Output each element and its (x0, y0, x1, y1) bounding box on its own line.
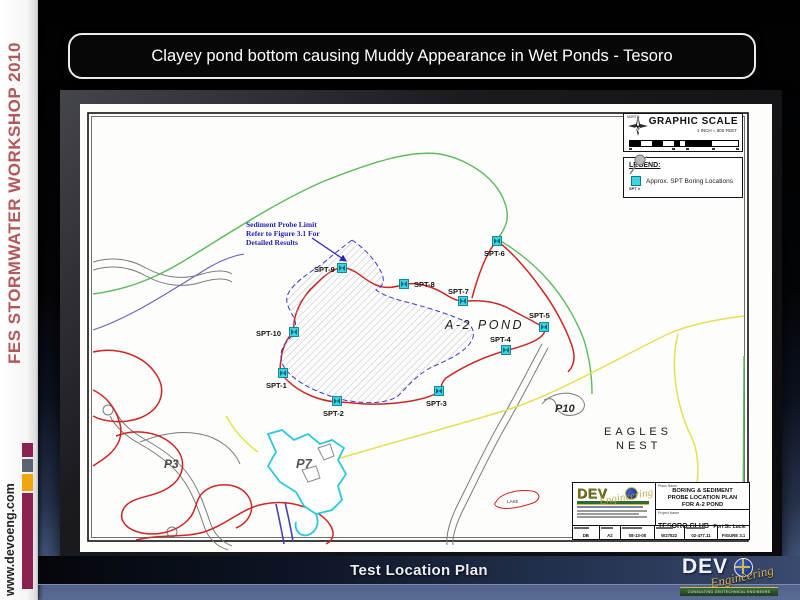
boring-label: SPT-8 (414, 280, 435, 289)
boring-label: SPT-10 (256, 329, 281, 338)
boring-label: SPT-1 (266, 381, 287, 390)
north-arrow: NORTH N (627, 115, 639, 119)
tb-cell-drawn: DB (583, 533, 589, 540)
eagles-nest-line1: EAGLES (604, 426, 672, 438)
tb-cell-date: 08-13-08 (629, 533, 646, 540)
tb-cell-figure: FIGURE 3.1 (722, 533, 745, 540)
legend-entry: Approx. SPT Boring Locations (646, 178, 733, 185)
website-url: www.devoeng.com (3, 440, 20, 596)
slide-title: Clayey pond bottom causing Muddy Appeara… (151, 47, 672, 66)
footer-logo-tagline-bar: CONSULTING GEOTECHNICAL ENGINEERS (680, 587, 778, 596)
graphic-scale-box: NORTH N GRAPHIC SCALE 1 INCH = 800 FEET (623, 113, 743, 152)
p10-label: P10 (555, 403, 575, 415)
boring-label: SPT-5 (529, 311, 550, 320)
boring-label: SPT-4 (490, 335, 512, 344)
blue-lines (93, 254, 293, 544)
workshop-title: FES STORMWATER WORKSHOP 2010 (5, 6, 31, 364)
boring-label: SPT-2 (323, 409, 344, 418)
sidebar-maroon-bar (22, 493, 33, 589)
map-paper: SPT-1SPT-2SPT-3SPT-4SPT-5SPT-6SPT-7SPT-8… (80, 104, 772, 552)
slide-title-box: Clayey pond bottom causing Muddy Appeara… (68, 33, 756, 79)
footer-devo-logo: DEV Engineering CONSULTING GEOTECHNICAL … (676, 553, 800, 599)
tb-cell-job: W27522 (661, 533, 677, 540)
boring-label: SPT-6 (484, 249, 505, 258)
footer-logo-tagline: CONSULTING GEOTECHNICAL ENGINEERS (688, 590, 771, 594)
tb-cell-sheet: 02-477.11 (691, 533, 710, 540)
boring-label: SPT-9 (314, 265, 335, 274)
sidebar-maroon-block (22, 443, 33, 457)
svg-text:N: N (635, 127, 640, 134)
sidebar-amber-block (22, 474, 33, 491)
lake-label: LAKE (507, 499, 519, 504)
spt-swatch-label: SPT # (629, 186, 640, 191)
pond-label: A-2 POND (444, 318, 524, 332)
scale-bar (629, 140, 739, 147)
legend-box: LEGEND: SPT # Approx. SPT Boring Locatio… (623, 157, 743, 198)
title-block-logo: DEV Engineering (573, 483, 656, 525)
sidebar: FES STORMWATER WORKSHOP 2010 www.devoeng… (0, 0, 38, 600)
graphic-scale-ratio: 1 INCH = 800 FEET (697, 128, 737, 133)
p3-label: P3 (164, 457, 179, 471)
compass-icon: N (627, 115, 649, 139)
plan-title: BORING & SEDIMENT PROBE LOCATION PLAN FO… (656, 488, 749, 509)
p7-label: P7 (296, 456, 313, 471)
footer-caption: Test Location Plan (350, 562, 488, 579)
pushpin-icon (624, 152, 650, 178)
sidebar-slate-block (22, 459, 33, 472)
boring-label: SPT-7 (448, 287, 469, 296)
tb-cell-scale: A2 (607, 533, 613, 540)
graphic-scale-title: GRAPHIC SCALE (649, 116, 738, 127)
title-block: DEV Engineering Plans Name BORING & SEDI… (572, 482, 750, 540)
eagles-nest-line2: NEST (616, 440, 661, 452)
title-block-cells: DB A2 08-13-08 W27522 02-477.11 FIGURE 3… (573, 525, 749, 539)
probe-note: Sediment Probe Limit Refer to Figure 3.1… (246, 220, 358, 247)
boring-label: SPT-3 (426, 399, 447, 408)
